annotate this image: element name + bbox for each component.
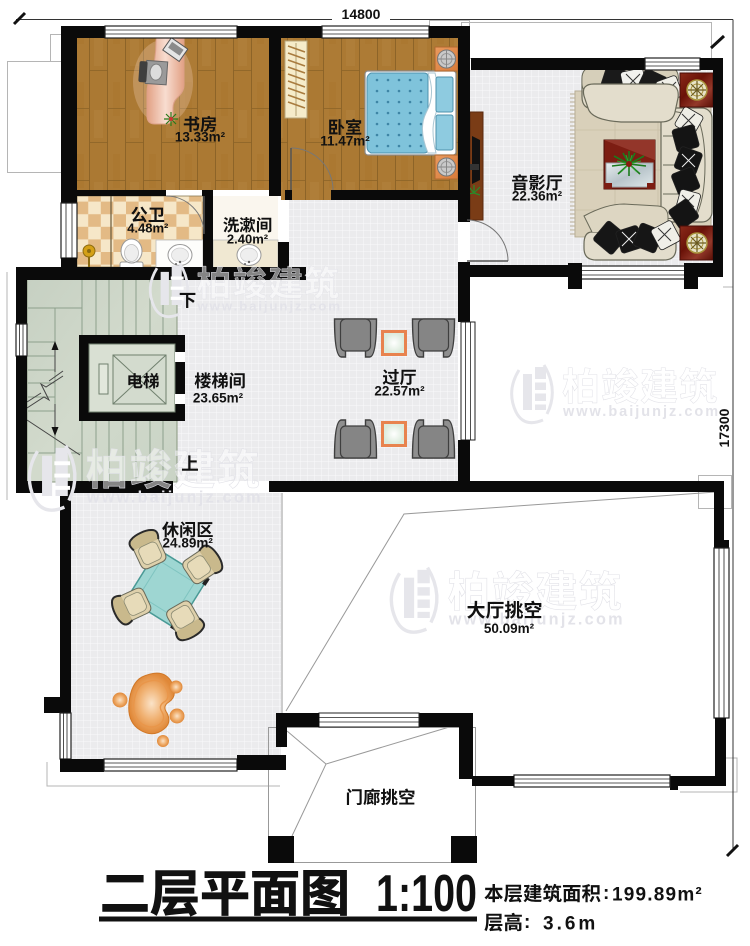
svg-text:14800: 14800 [342, 6, 381, 22]
svg-text:2.40m²: 2.40m² [227, 232, 269, 247]
svg-text::: : [603, 883, 609, 904]
svg-text:www.baijunjz.com: www.baijunjz.com [562, 404, 720, 420]
svg-text:www.baijunjz.com: www.baijunjz.com [196, 299, 341, 314]
svg-text:3.6m: 3.6m [543, 914, 598, 935]
svg-text:23.65m²: 23.65m² [193, 391, 244, 406]
svg-text:199.89m²: 199.89m² [612, 885, 703, 906]
svg-text:www.baijunjz.com: www.baijunjz.com [86, 489, 263, 507]
svg-text::: : [524, 912, 530, 933]
svg-text:24.89m²: 24.89m² [163, 536, 214, 551]
svg-text:4.48m²: 4.48m² [127, 221, 169, 236]
svg-text:22.36m²: 22.36m² [512, 189, 563, 204]
svg-text:13.33m²: 13.33m² [175, 130, 226, 145]
svg-text:50.09m²: 50.09m² [484, 621, 535, 636]
svg-text:1:100: 1:100 [376, 865, 477, 923]
svg-text:22.57m²: 22.57m² [374, 384, 425, 399]
svg-text:11.47m²: 11.47m² [320, 134, 370, 149]
